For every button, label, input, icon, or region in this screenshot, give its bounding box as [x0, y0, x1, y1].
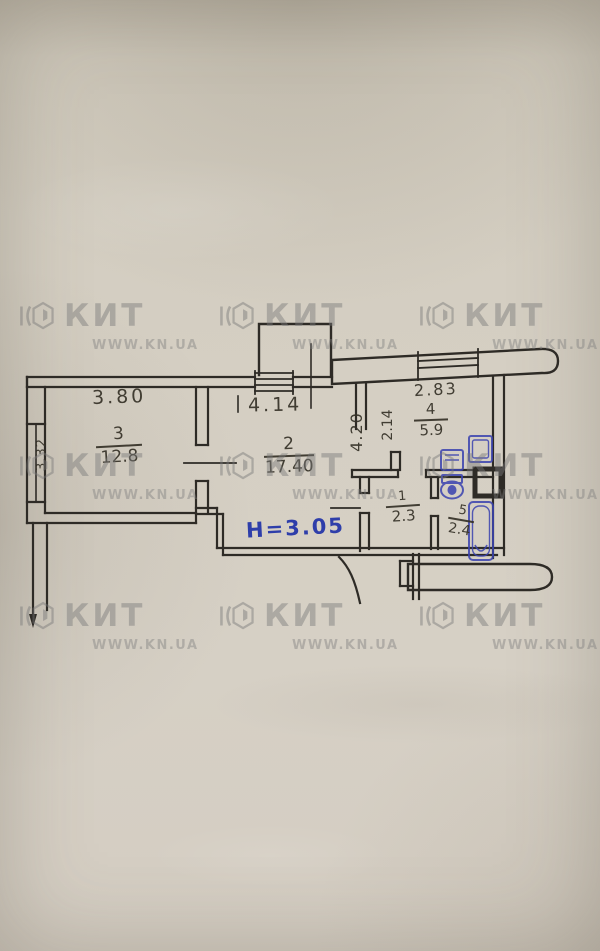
room3-number: 3 [113, 426, 125, 444]
floor-plan-photo: 3.80 3.32 3 12.8 4.14 2 17.40 4.20 2.14 … [0, 0, 600, 951]
dim-room4-width: 2.83 [414, 381, 458, 399]
room4-number: 4 [426, 402, 436, 417]
window-balcony [255, 371, 293, 394]
boiler-icon [441, 450, 463, 470]
room4-area: 5.9 [419, 423, 443, 439]
hall-area: 2.3 [391, 508, 416, 525]
sink-icon [469, 436, 492, 462]
room3-label: 3 12.8 [95, 425, 143, 467]
room3-room2-wall [184, 387, 236, 523]
room2-label: 2 17.40 [263, 435, 314, 477]
vent-shaft [475, 469, 501, 496]
hall-number: 1 [398, 490, 407, 504]
room2-number: 2 [283, 436, 294, 453]
ceiling-height-note: H=3.05 [246, 515, 346, 541]
dim-room2-depth: 4.20 [349, 409, 365, 455]
room3-area: 12.8 [100, 448, 139, 467]
bath-area: 2.4 [447, 521, 471, 539]
room3-bottom-wall [27, 513, 196, 523]
bath-number: 5 [458, 504, 468, 518]
balcony-outline [259, 324, 331, 375]
dim-room2-width: 4.14 [248, 396, 303, 416]
hall-label: 1 2.3 [385, 489, 421, 525]
left-wall [27, 377, 47, 628]
toilet-icon [441, 475, 463, 499]
entrance-stoop [339, 554, 552, 603]
dim-opening: 2.14 [381, 405, 395, 445]
room4-label: 4 5.9 [413, 401, 448, 438]
entrance-door-arc [339, 557, 360, 603]
room2-area: 17.40 [265, 458, 314, 477]
dim-room3-depth: 3.32 [36, 433, 49, 477]
dim-room3-width: 3.80 [92, 387, 147, 408]
